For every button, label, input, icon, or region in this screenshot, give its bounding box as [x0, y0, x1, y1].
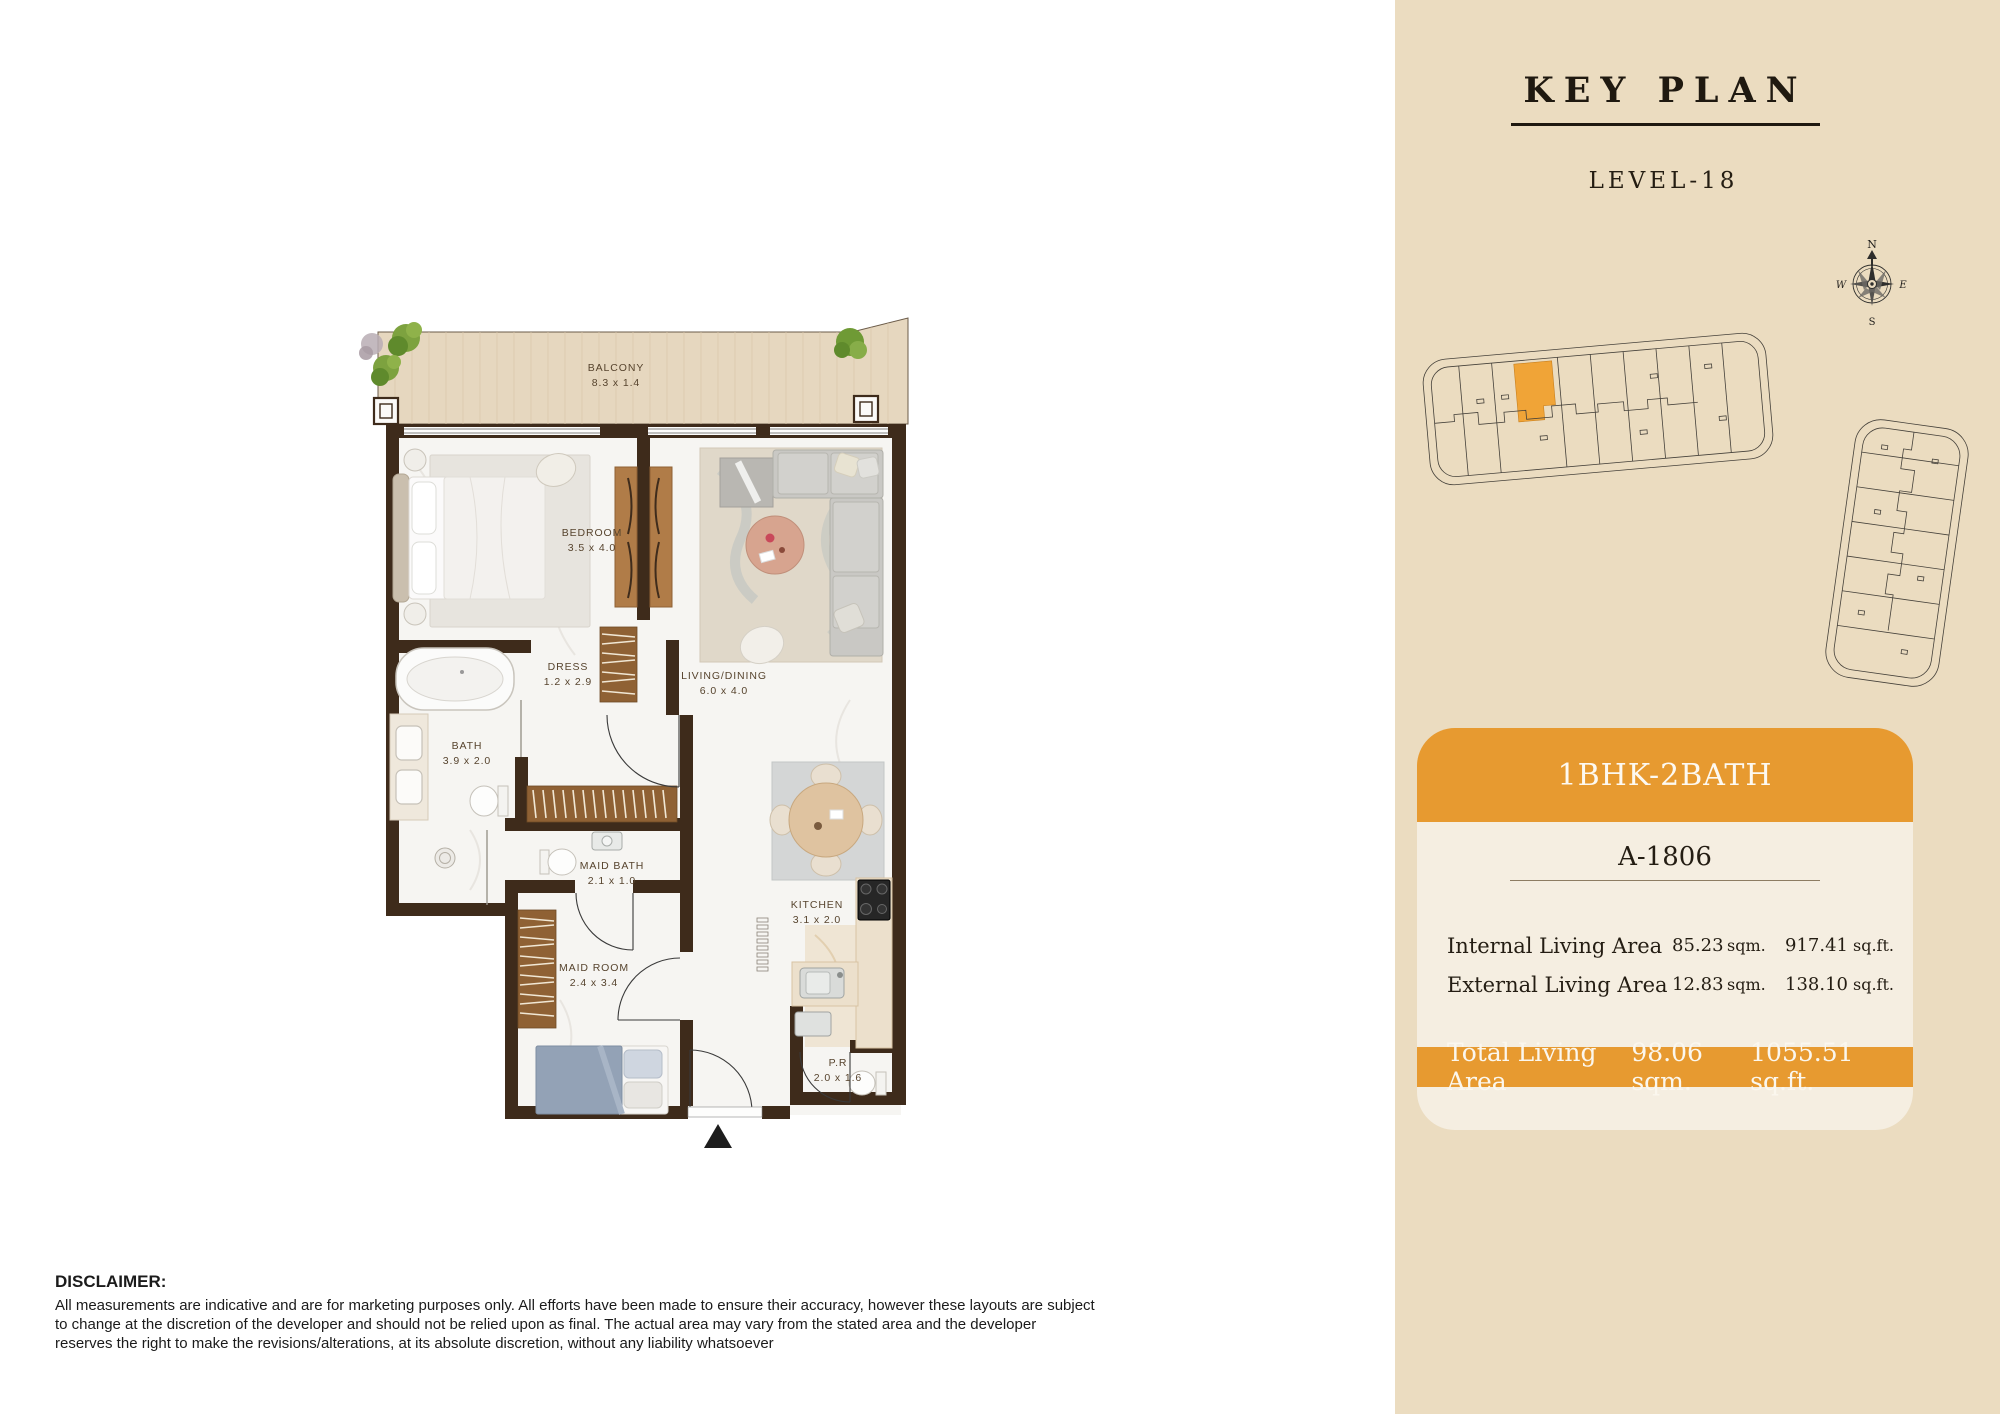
nightstand [404, 603, 426, 625]
sink [396, 770, 422, 804]
total-area-bar: Total Living Area 98.06 sqm. 1055.51 sq.… [1417, 1047, 1913, 1087]
room-label-maid-room: MAID ROOM [559, 962, 629, 974]
key-plan-graphics: N E W S [1395, 150, 2000, 720]
page: BALCONY 8.3 x 1.4 BEDROOM 3.5 x 4.0 DRES… [0, 0, 2000, 1414]
svg-text:8.3 x 1.4: 8.3 x 1.4 [592, 377, 640, 389]
stove [858, 880, 890, 920]
svg-text:3.9 x 2.0: 3.9 x 2.0 [443, 755, 491, 767]
room-label-bedroom: BEDROOM [562, 527, 623, 539]
disclaimer-title: DISCLAIMER: [55, 1272, 1095, 1292]
room-label-maid-bath: MAID BATH [580, 860, 645, 872]
internal-area-row: Internal Living Area 85.23 sqm. 917.41 s… [1417, 926, 1913, 965]
highlighted-unit [1514, 361, 1557, 422]
svg-text:2.0 x 1.6: 2.0 x 1.6 [814, 1072, 862, 1084]
svg-text:6.0 x 4.0: 6.0 x 4.0 [700, 685, 748, 697]
internal-area-label: Internal Living Area [1447, 934, 1672, 958]
external-area-sqm: 12.83 [1672, 974, 1727, 995]
nightstand [404, 449, 426, 471]
compass-n: N [1867, 238, 1877, 251]
internal-area-sqft: 917.41 [1785, 935, 1853, 956]
total-area-sqft: 1055.51 sq.ft. [1750, 1038, 1899, 1096]
svg-text:3.1 x 2.0: 3.1 x 2.0 [793, 914, 841, 926]
svg-text:3.5 x 4.0: 3.5 x 4.0 [568, 542, 616, 554]
toilet [470, 786, 508, 816]
appliance [795, 1012, 831, 1036]
unit-info-card: 1BHK-2BATH A-1806 Internal Living Area 8… [1417, 728, 1913, 1130]
room-label-living: LIVING/DINING [681, 670, 767, 682]
compass-e: E [1898, 280, 1907, 291]
disclaimer-body: All measurements are indicative and are … [55, 1297, 1095, 1354]
compass-s: S [1869, 317, 1876, 328]
external-area-label: External Living Area [1447, 973, 1672, 997]
unit-number: A-1806 [1417, 842, 1913, 872]
internal-area-sqm: 85.23 [1672, 935, 1727, 956]
unit-number-underline [1510, 880, 1820, 881]
total-area-sqm: 98.06 sqm. [1631, 1038, 1750, 1096]
room-label-pr: P.R [829, 1057, 848, 1069]
external-area-sqft: 138.10 [1785, 974, 1853, 995]
disclaimer: DISCLAIMER: All measurements are indicat… [55, 1272, 1095, 1354]
area-rows: Internal Living Area 85.23 sqm. 917.41 s… [1417, 926, 1913, 1004]
svg-text:1.2 x 2.9: 1.2 x 2.9 [544, 676, 592, 688]
maid-bed [536, 1046, 668, 1114]
sink [396, 726, 422, 760]
key-plan-building-b [1822, 416, 1971, 689]
dress-shelf [600, 627, 637, 702]
compass-icon: N E W S [1836, 238, 1907, 328]
kitchen-sink [800, 968, 844, 998]
room-label-dress: DRESS [548, 661, 589, 673]
entrance-arrow [704, 1124, 732, 1148]
shower-drain [435, 848, 455, 868]
floor-plan: BALCONY 8.3 x 1.4 BEDROOM 3.5 x 4.0 DRES… [340, 290, 940, 1170]
maid-shelf [518, 910, 556, 1028]
unit-type-badge: 1BHK-2BATH [1417, 728, 1913, 822]
unit-type-label: 1BHK-2BATH [1558, 758, 1773, 793]
svg-text:2.1 x 1.0: 2.1 x 1.0 [588, 875, 636, 887]
bed [393, 474, 545, 602]
external-area-row: External Living Area 12.83 sqm. 138.10 s… [1417, 965, 1913, 1004]
key-plan-title: KEY PLAN [1511, 70, 1819, 126]
room-label-balcony: BALCONY [588, 362, 644, 374]
key-plan-building-a [1421, 331, 1775, 487]
room-label-kitchen: KITCHEN [791, 899, 843, 911]
total-area-label: Total Living Area [1447, 1038, 1631, 1096]
shoe-cabinet [527, 786, 677, 822]
coffee-table [746, 516, 804, 574]
svg-text:2.4 x 3.4: 2.4 x 3.4 [570, 977, 618, 989]
unit-card-body: A-1806 Internal Living Area 85.23 sqm. 9… [1417, 822, 1913, 1130]
room-label-bath: BATH [452, 740, 483, 752]
compass-w: W [1836, 280, 1847, 291]
